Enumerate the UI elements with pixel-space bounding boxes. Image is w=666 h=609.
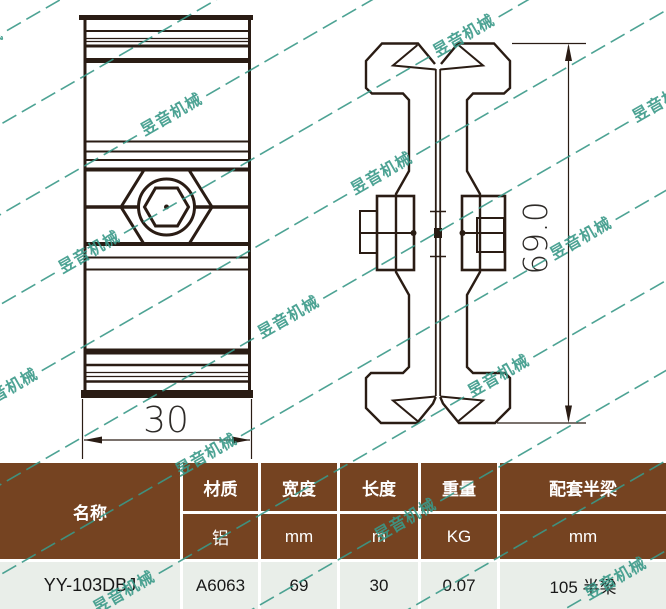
unit-length: m — [340, 514, 418, 559]
value-length: 30 — [340, 562, 418, 609]
spec-table: 名称 材质 宽度 长度 重量 配套半梁 铝 mm m KG mm YY-103D… — [0, 463, 666, 609]
arrow-up-icon — [565, 44, 572, 62]
center-web — [430, 69, 446, 396]
arrow-left-icon — [84, 437, 102, 444]
arrow-right-icon — [232, 437, 250, 444]
value-material: A6063 — [183, 562, 258, 609]
unit-width: mm — [261, 514, 337, 559]
value-name: YY-103DBJ — [0, 562, 180, 609]
width-dimension: 30 — [83, 399, 252, 459]
width-dim-label: 30 — [143, 400, 189, 441]
value-matching-beam: 105 半梁 — [500, 562, 666, 609]
col-header-width: 宽度 — [261, 463, 337, 511]
technical-drawing: 30 — [0, 0, 666, 462]
col-header-weight: 重量 — [421, 463, 497, 511]
right-block — [460, 196, 506, 270]
height-dimension: 69.0 — [497, 44, 586, 424]
center-mark — [164, 205, 169, 210]
col-header-material: 材质 — [183, 463, 258, 511]
front-view: 30 — [79, 15, 253, 459]
left-block — [360, 196, 417, 270]
unit-material: 铝 — [183, 514, 258, 559]
product-drawing-page: 30 — [0, 0, 666, 609]
value-weight: 0.07 — [421, 562, 497, 609]
arrow-down-icon — [565, 406, 572, 424]
value-width: 69 — [261, 562, 337, 609]
side-view: 69.0 — [360, 44, 586, 424]
unit-weight: KG — [421, 514, 497, 559]
col-header-length: 长度 — [340, 463, 418, 511]
col-header-matching-beam: 配套半梁 — [500, 463, 666, 511]
col-header-name: 名称 — [0, 463, 180, 559]
unit-matching-beam: mm — [500, 514, 666, 559]
height-dim-label: 69.0 — [516, 201, 555, 274]
